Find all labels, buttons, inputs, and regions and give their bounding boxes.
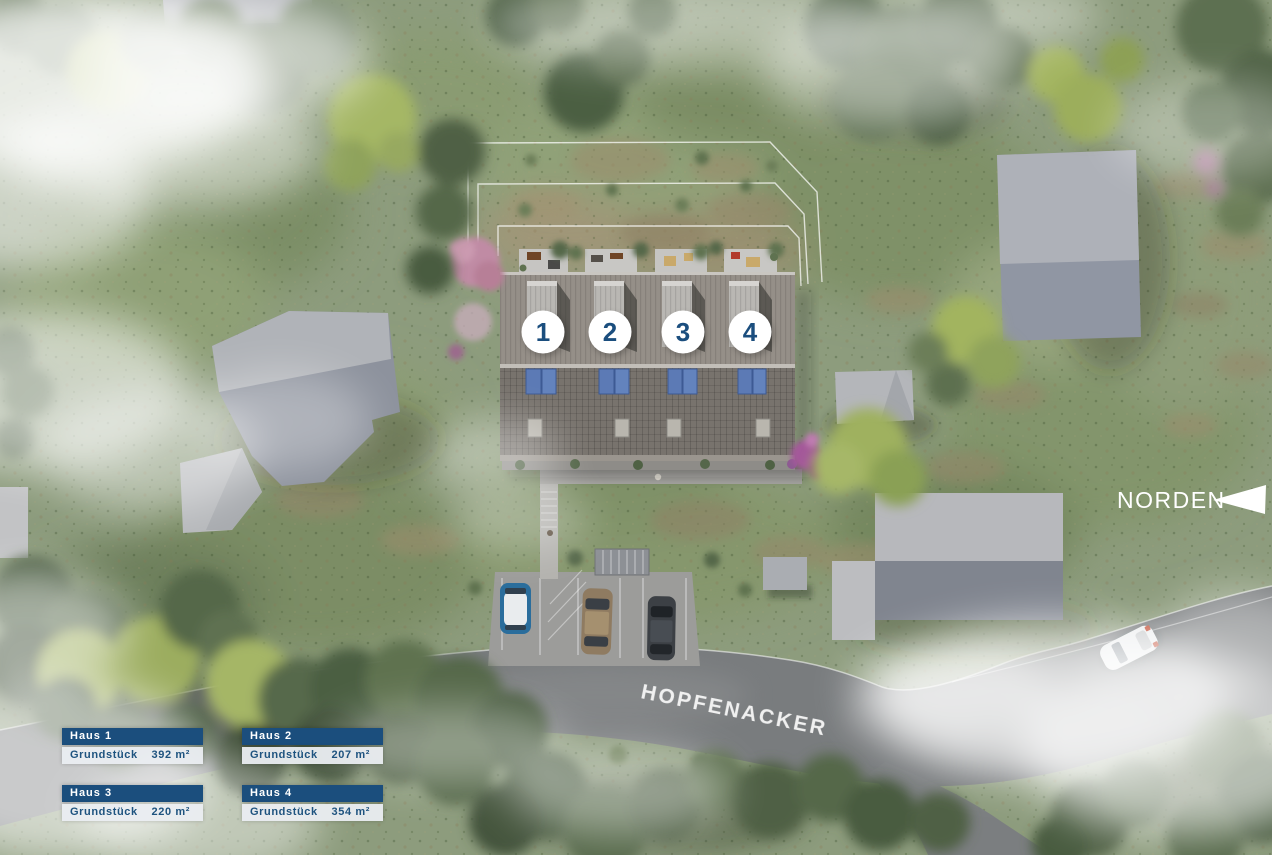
- plot-size-value: 354 m²: [332, 807, 370, 818]
- info-box-haus-3: Haus 3 Grundstück 220 m²: [62, 785, 203, 821]
- svg-text:1: 1: [536, 317, 550, 347]
- left-edge-building: [0, 487, 28, 558]
- info-box-haus-4: Haus 4 Grundstück 354 m²: [242, 785, 383, 821]
- info-box-title: Haus 3: [62, 785, 203, 802]
- info-box-haus-2: Haus 2 Grundstück 207 m²: [242, 728, 383, 764]
- plot-size-value: 392 m²: [152, 750, 190, 761]
- info-box-haus-1: Haus 1 Grundstück 392 m²: [62, 728, 203, 764]
- info-box-title: Haus 2: [242, 728, 383, 745]
- plot-size-value: 207 m²: [332, 750, 370, 761]
- plot-size-value: 220 m²: [152, 807, 190, 818]
- plot-size-label: Grundstück: [70, 750, 138, 761]
- garden-shed: [763, 557, 812, 598]
- neighbor-building-top-right: [997, 150, 1170, 370]
- info-box-title: Haus 1: [62, 728, 203, 745]
- car-blue: [500, 583, 531, 634]
- bike-shelter: [595, 549, 649, 575]
- car-bronze: [581, 588, 613, 655]
- car-dark: [647, 596, 676, 660]
- plot-size-label: Grundstück: [250, 750, 318, 761]
- info-box-title: Haus 4: [242, 785, 383, 802]
- svg-text:2: 2: [603, 317, 617, 347]
- aerial-scene: HOPFENACKER NORDEN 1 2 3 4: [0, 0, 1272, 855]
- plot-size-label: Grundstück: [70, 807, 138, 818]
- svg-text:4: 4: [743, 317, 758, 347]
- plot-size-label: Grundstück: [250, 807, 318, 818]
- svg-text:3: 3: [676, 317, 690, 347]
- north-label: NORDEN: [1117, 487, 1226, 513]
- site-plan-rendering: HOPFENACKER NORDEN 1 2 3 4 Haus 1 Grund: [0, 0, 1272, 855]
